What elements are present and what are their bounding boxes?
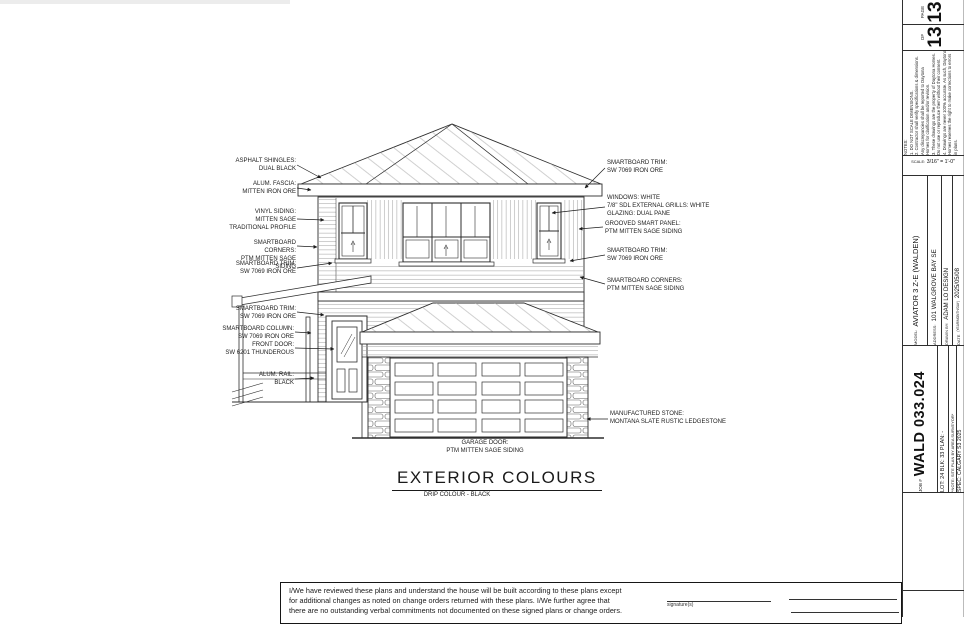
- window-left: [339, 203, 367, 259]
- signature-label: signature(s): [667, 602, 693, 608]
- callout-vinyl-siding: VINYL SIDING: MITTEN SAGE TRADITIONAL PR…: [226, 209, 296, 233]
- divider: [902, 590, 964, 591]
- drawn-by-label: DRAWN BY:: [944, 323, 949, 345]
- page-of-cell: OF 13: [903, 24, 964, 50]
- window-centre: [403, 203, 490, 262]
- job-number: WALD 033.024: [912, 371, 928, 476]
- front-door: [326, 316, 367, 402]
- garage-header: [362, 344, 598, 357]
- divider: [902, 492, 964, 493]
- address-cell: ADDRESS: 101 WALGROVE BAY SE: [927, 175, 941, 345]
- stone-pier-right: [566, 357, 588, 438]
- callout-alum-rail: ALUM. RAIL: BLACK: [244, 372, 294, 388]
- floor-trim-band: [318, 292, 584, 301]
- address-label: ADDRESS:: [932, 325, 937, 345]
- window-right: [537, 203, 561, 259]
- callout-smartboard-trim-right-1: SMARTBOARD TRIM: SW 7069 IRON ORE: [607, 160, 703, 176]
- garage-door: [390, 358, 567, 437]
- callout-smartboard-trim-left-1: SMARTBOARD TRIM: SW 7069 IRON ORE: [226, 261, 296, 277]
- plan-sheet: ASPHALT SHINGLES: DUAL BLACK ALUM. FASCI…: [0, 0, 966, 617]
- date-cell: DATE (YEAR/MONTH/DAY) 2025/05/08: [952, 175, 964, 345]
- page-number: 13: [925, 1, 947, 22]
- divider: [902, 155, 964, 156]
- callout-smartboard-corners-right: SMARTBOARD CORNERS: PTM MITTEN SAGE SIDI…: [607, 278, 707, 294]
- callout-grooved-smart-panel: GROOVED SMART PANEL: PTM MITTEN SAGE SID…: [605, 221, 705, 237]
- callout-smartboard-column: SMARTBOARD COLUMN: SW 7069 IRON ORE: [222, 326, 294, 342]
- main-fascia: [298, 184, 602, 196]
- callout-garage-door: GARAGE DOOR: PTM MITTEN SAGE SIDING: [425, 440, 545, 456]
- job-label: JOB #: [918, 479, 923, 492]
- site-note-cell: *NOTE: SITE PLAN BY AREA SURVEYOR*: [948, 345, 956, 492]
- site-note: *NOTE: SITE PLAN BY AREA SURVEYOR*: [950, 414, 955, 492]
- scale-label: SCALE:: [911, 159, 925, 164]
- callout-asphalt-shingles: ASPHALT SHINGLES: DUAL BLACK: [226, 158, 296, 174]
- agreement-text: I/We have reviewed these plans and under…: [289, 586, 709, 617]
- callout-smartboard-trim-right-2: SMARTBOARD TRIM: SW 7069 IRON ORE: [607, 248, 703, 264]
- main-roof: [301, 124, 601, 184]
- scale-cell: SCALE: 3/16" = 1'-0": [903, 159, 963, 165]
- date-value: 2025/05/08: [955, 268, 961, 298]
- callout-manufactured-stone: MANUFACTURED STONE: MONTANA SLATE RUSTIC…: [610, 411, 730, 427]
- elevation-drawing: [0, 0, 966, 617]
- sill-right: [533, 259, 565, 263]
- drawing-title: EXTERIOR COLOURS: [392, 468, 602, 491]
- garage-fascia: [360, 332, 600, 344]
- date-format-label: (YEAR/MONTH/DAY): [956, 301, 960, 332]
- signature-line-2[interactable]: [789, 599, 897, 600]
- job-cell: JOB # WALD 033.024: [903, 345, 937, 492]
- scale-value: 3/16" = 1'-0": [927, 159, 955, 165]
- date-label: DATE: [956, 335, 961, 345]
- callout-front-door: FRONT DOOR: SW 6201 THUNDEROUS: [224, 342, 294, 358]
- notes-text: NOTES: 1. DO NOT SCALE DIMENSIONS. 2. Co…: [903, 50, 958, 155]
- page-cell: PAGE 13: [903, 0, 964, 24]
- of-number: 13: [925, 26, 947, 47]
- model-cell: MODEL: AVIATOR 3 Z-E (WALDEN): [903, 175, 927, 345]
- drawn-by-cell: DRAWN BY: ADAM LO DESIGN: [941, 175, 952, 345]
- door-lite: [337, 327, 357, 362]
- lot-line: LOT: 24 BLK: 33 PLAN: -: [940, 431, 946, 492]
- callout-smartboard-trim-left-2: SMARTBOARD TRIM: SW 7069 IRON ORE: [226, 306, 296, 322]
- callout-windows: WINDOWS: WHITE 7/8" SDL EXTERNAL GRILLS:…: [607, 195, 727, 219]
- spec-line: SPEC: CALGARY S3 2025: [957, 430, 963, 492]
- signature-line-3[interactable]: [791, 612, 899, 613]
- model-value: AVIATOR 3 Z-E (WALDEN): [911, 236, 920, 327]
- spec-cell: SPEC: CALGARY S3 2025: [956, 345, 964, 492]
- lot-cell: LOT: 24 BLK: 33 PLAN: -: [937, 345, 948, 492]
- callout-alum-fascia: ALUM. FASCIA: MITTEN IRON ORE: [226, 181, 296, 197]
- stone-pier-left: [368, 357, 390, 438]
- porch-post-right: [306, 317, 310, 402]
- model-label: MODEL:: [913, 330, 918, 345]
- sill-centre: [399, 262, 494, 266]
- notes-cell: NOTES: 1. DO NOT SCALE DIMENSIONS. 2. Co…: [903, 50, 961, 155]
- drawn-by-value: ADAM LO DESIGN: [944, 268, 950, 320]
- drawing-subtitle: DRIP COLOUR - BLACK: [392, 492, 522, 498]
- sill-left: [335, 259, 371, 263]
- address-value: 101 WALGROVE BAY SE: [931, 249, 938, 321]
- agreement-box: I/We have reviewed these plans and under…: [280, 582, 902, 624]
